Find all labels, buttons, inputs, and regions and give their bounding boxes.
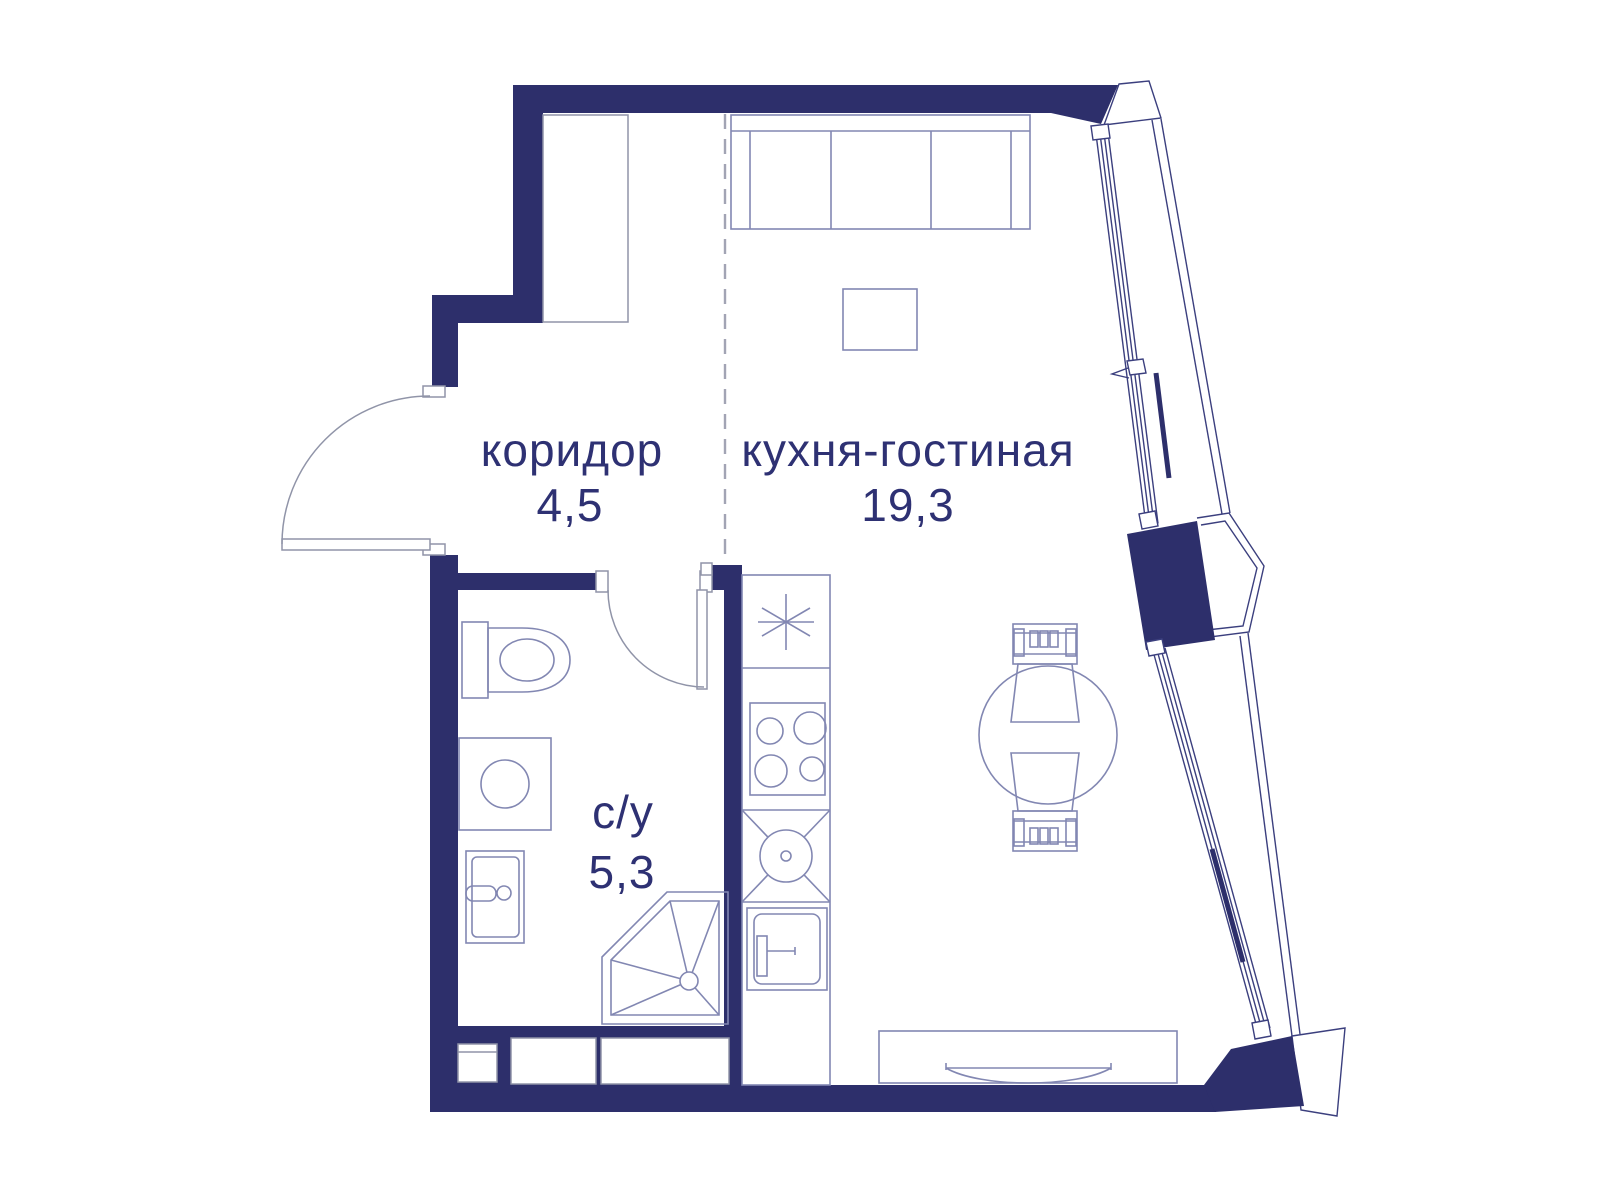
toilet [462,622,570,698]
room-label-kitchen-living: кухня-гостиная [741,424,1074,476]
tv-screen-curve [946,1068,1111,1083]
stove [750,703,826,795]
room-area-bathroom: 5,3 [589,846,656,898]
wall-left-lower [430,555,458,1085]
tv-stand [879,1031,1177,1083]
door-jamb [701,563,712,575]
window-glazing [1161,649,1266,1029]
kitchen-column [742,575,830,1085]
window-glazing [1100,134,1150,525]
duct-niche [458,1044,497,1082]
radiator-line [1156,373,1169,478]
toilet-tank [462,622,488,698]
shower-drain [680,972,698,990]
chair-back [1013,624,1077,664]
shower [602,892,728,1024]
tv-stand-outline [879,1031,1177,1083]
wall-left-upper [513,85,543,323]
window-jamb [1139,511,1158,529]
window-glazing [1104,133,1154,524]
window-jamb [1146,639,1165,656]
sink-bowl [760,830,812,882]
wash-basin [466,851,524,943]
sofa-outline [731,115,1030,229]
window-glazing [1153,651,1258,1031]
entrance-door-swing-arc [282,396,430,544]
wall-bathroom-right [724,565,742,1038]
washing-machine [459,738,551,830]
sofa [731,115,1030,229]
kitchen-sink [747,908,827,990]
coffee-table [843,289,917,350]
facade-outer-line [1161,119,1230,513]
window-glazing [1096,134,1146,525]
facade-outer-line [1152,120,1222,514]
window-jamb [1252,1020,1271,1039]
radiator-line [1212,849,1243,962]
wall-niche [511,1038,596,1084]
basin-faucet [466,886,496,901]
toilet-bowl-inner [500,639,554,681]
wall-step [432,295,543,323]
washer-drum [481,760,529,808]
bathroom-door-swing-arc [608,590,704,687]
snowflake-icon [758,594,814,650]
sink-basin [754,914,820,984]
window-mullion [1127,359,1146,375]
window-glazing [1157,650,1262,1030]
washer-outline [459,738,551,830]
chair-back [1013,811,1077,851]
wall-bathroom-top-left [458,573,598,590]
burner [800,757,824,781]
entrance-door-leaf [282,539,430,550]
wall-left-entry [432,323,458,387]
burner [757,718,783,744]
faucet-body [757,936,767,976]
kitchen-sink-unit [742,810,830,902]
chair-seat [1011,753,1079,811]
chair-seat [1011,664,1079,722]
basin-drain [497,886,511,900]
wall-pier [1127,521,1215,650]
entrance-door [282,396,430,550]
room-label-bathroom: с/у [592,786,654,838]
wall-bottom [430,1085,1216,1112]
window-glazing [1108,133,1158,524]
door-jamb [596,571,608,592]
floor-plan-canvas: коридор 4,5 кухня-гостиная 19,3 с/у 5,3 [0,0,1600,1200]
burner [794,712,826,744]
bathroom-door-leaf [697,590,707,689]
window-jamb [1091,124,1110,140]
room-area-corridor: 4,5 [537,479,604,531]
dining-chair-bottom [1011,753,1079,851]
fridge [742,594,830,668]
sink-outline [747,908,827,990]
wall-corner-slant [1204,1036,1304,1112]
room-label-corridor: коридор [481,424,664,476]
dining-table [979,666,1117,804]
wall-bathroom-bottom [430,1026,742,1038]
room-area-kitchen-living: 19,3 [861,479,955,531]
shower-tray [611,901,719,1015]
wardrobe [543,115,628,322]
floor-plan: коридор 4,5 кухня-гостиная 19,3 с/у 5,3 [0,0,1600,1200]
wall-niche [601,1038,729,1084]
dining-chair-top [1011,624,1079,722]
bathroom-door [608,590,707,689]
facade-outer-line [1248,633,1300,1034]
burner [755,755,787,787]
dining-set [979,624,1117,851]
window-glazing [1165,648,1270,1028]
